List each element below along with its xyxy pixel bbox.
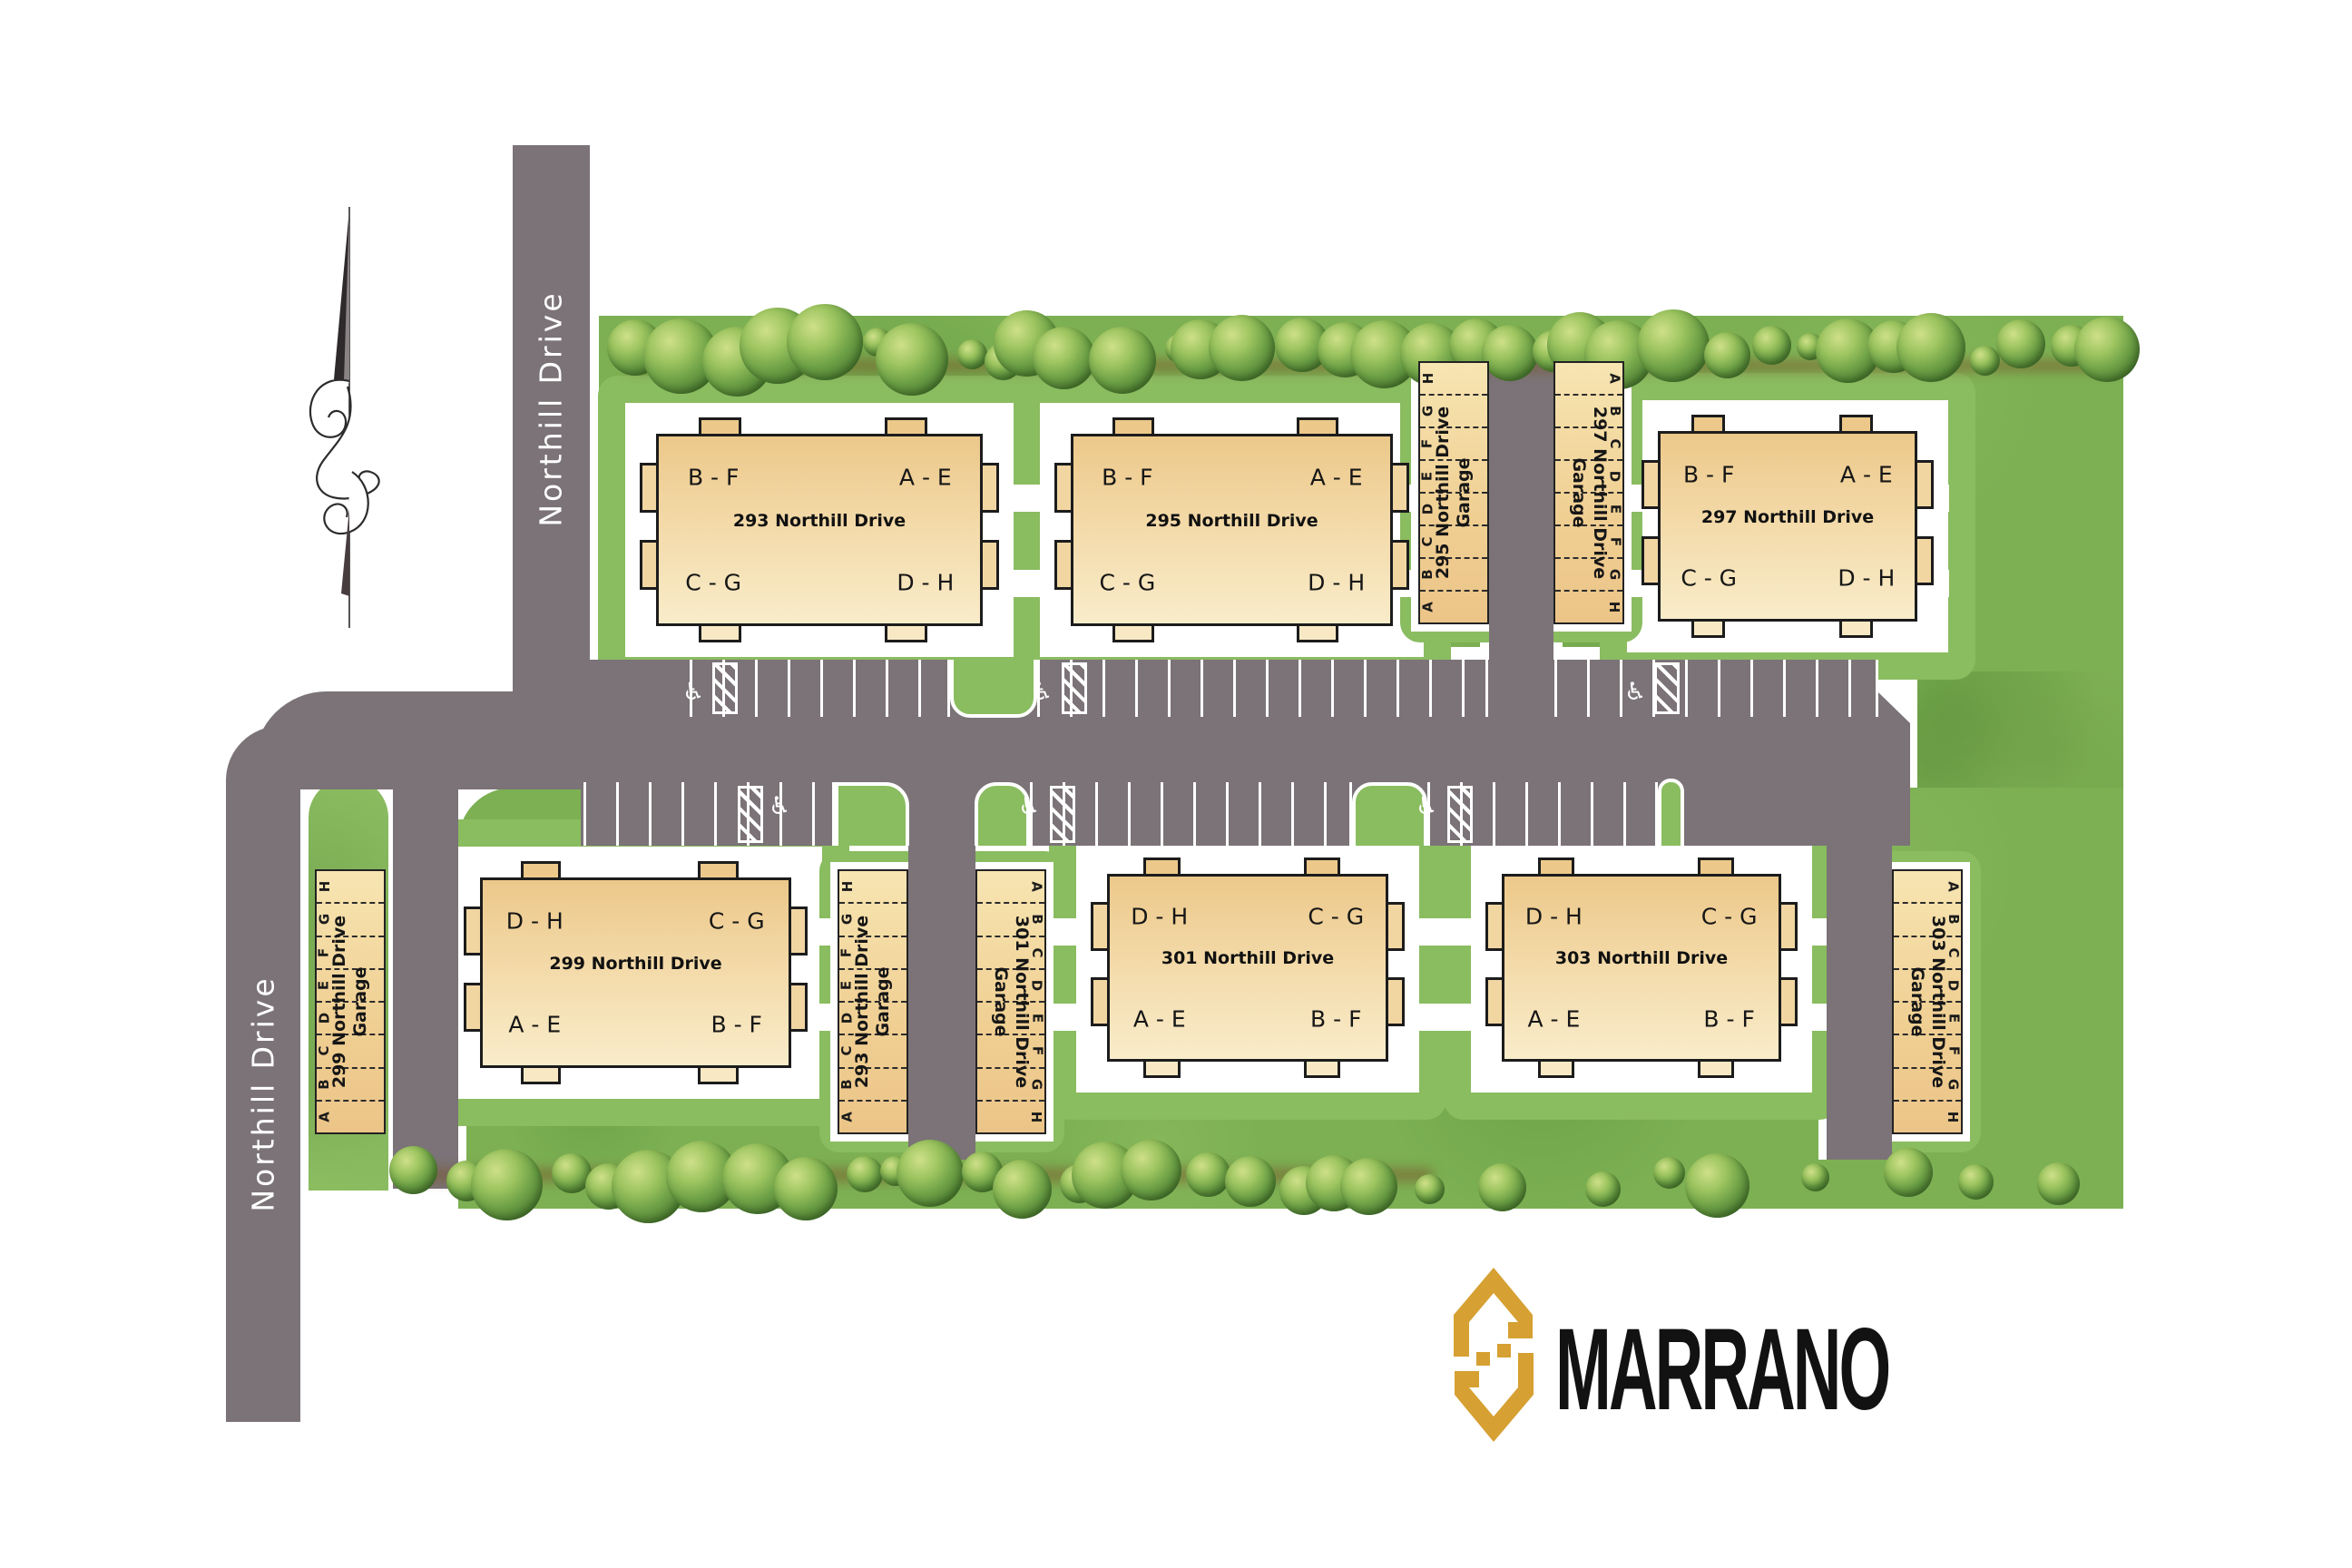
- unit-range-label: A - E: [899, 465, 952, 491]
- unit-range-label: C - G: [709, 907, 765, 934]
- building-footprint: B - F A - E C - G D - H 295 Northill Dri…: [1071, 434, 1393, 626]
- garage-stall: H: [1555, 590, 1622, 622]
- building-address-label: 303 Northill Drive: [1555, 948, 1728, 968]
- building-address-label: 293 Northill Drive: [733, 511, 906, 531]
- tree: [1685, 1153, 1749, 1218]
- tree: [1970, 346, 2000, 376]
- tree: [1958, 1164, 1994, 1200]
- unit-range-label: A - E: [1133, 1005, 1186, 1032]
- garage-stall: H: [1420, 363, 1487, 394]
- unit-range-label: C - G: [685, 569, 741, 595]
- tree: [1415, 1174, 1445, 1204]
- tree: [1186, 1152, 1230, 1197]
- garage-stall-letter: B: [1946, 915, 1960, 925]
- tree: [1033, 327, 1095, 389]
- marrano-logo-text: MARRANO: [1555, 1312, 2130, 1428]
- unit-range-label: C - G: [1701, 904, 1758, 930]
- garage-stall-letter: F: [1608, 537, 1622, 546]
- parking-island: [950, 656, 1037, 718]
- unit-range-label: B - F: [1703, 1005, 1754, 1032]
- tree: [1704, 332, 1750, 378]
- garage-stall-letter: A: [840, 1112, 854, 1122]
- building-address-label: 301 Northill Drive: [1161, 948, 1334, 968]
- garage-stall-letter: F: [1946, 1046, 1960, 1055]
- garage-stall-letter: C: [1608, 438, 1622, 448]
- garage-stall: H: [317, 871, 384, 902]
- building-address-label: 299 Northill Drive: [549, 954, 721, 974]
- tree: [774, 1157, 838, 1220]
- tree: [897, 1140, 964, 1207]
- garage-stall-letter: A: [1421, 602, 1435, 612]
- unit-range-label: B - F: [688, 465, 739, 491]
- garage-301: ABCDEFGH 301 Northill DriveGarage: [975, 869, 1046, 1134]
- unit-range-label: B - F: [1683, 461, 1734, 487]
- garage-303: ABCDEFGH 303 Northill DriveGarage: [1892, 869, 1963, 1134]
- unit-range-label: A - E: [508, 1012, 561, 1038]
- garage-stall-letter: C: [1946, 947, 1960, 957]
- tree: [1478, 1163, 1526, 1211]
- building-297: B - F A - E C - G D - H 297 Northill Dri…: [1638, 411, 1937, 642]
- unit-range-label: D - H: [1131, 904, 1188, 930]
- garage-stall-letter: E: [1030, 1014, 1044, 1023]
- unit-range-label: B - F: [1102, 465, 1152, 491]
- unit-range-label: D - H: [506, 907, 563, 934]
- garage-label: 303 Northill DriveGarage: [1906, 916, 1948, 1088]
- building-footprint: D - H C - G A - E B - F 303 Northill Dri…: [1502, 874, 1781, 1062]
- unit-range-label: C - G: [1308, 904, 1364, 930]
- north-arrow-compass: [272, 200, 426, 635]
- tree: [1653, 1157, 1685, 1189]
- garage-stall-letter: F: [1030, 1046, 1044, 1055]
- tree: [2074, 317, 2140, 382]
- building-301: D - H C - G A - E B - F 301 Northill Dri…: [1087, 854, 1408, 1082]
- tree: [1121, 1140, 1181, 1200]
- garage-stall-letter: E: [1608, 505, 1622, 514]
- accessible-stall: [738, 786, 763, 843]
- garage-stall-letter: H: [841, 881, 855, 893]
- garage-stall: H: [977, 1100, 1044, 1132]
- garage-stall-letter: E: [1946, 1014, 1960, 1023]
- garage-stall-letter: A: [1608, 373, 1622, 384]
- tree: [1752, 326, 1791, 365]
- site-plan: ♿ ♿ ♿ ♿ ♿ ♿ B - F A - E C - G D - H 293 …: [0, 0, 2352, 1568]
- parking-stalls: [583, 782, 835, 846]
- garage-297: ABCDEFGH 297 Northill DriveGarage: [1553, 361, 1624, 624]
- accessible-parking-icon: ♿: [1416, 794, 1437, 818]
- tree: [957, 339, 987, 369]
- garage-label: 295 Northill DriveGarage: [1433, 407, 1475, 579]
- road-label-northill-top: Northill Drive: [508, 154, 594, 662]
- garage-label: 299 Northill DriveGarage: [329, 916, 371, 1088]
- tree: [787, 304, 863, 380]
- garage-label: 301 Northill DriveGarage: [990, 916, 1032, 1088]
- garage-stall-letter: H: [1029, 1112, 1043, 1123]
- parking-stalls: [1554, 660, 1878, 717]
- tree: [389, 1146, 437, 1194]
- accessible-stall: [1654, 662, 1680, 714]
- garage-stall-letter: A: [1030, 881, 1044, 892]
- tree: [1482, 325, 1538, 381]
- marrano-logo-icon: [1443, 1266, 1544, 1444]
- garage-stall: A: [1894, 871, 1961, 902]
- accessible-parking-icon: ♿: [1031, 680, 1053, 704]
- parking-island: [1658, 779, 1684, 849]
- tree: [1340, 1158, 1397, 1215]
- accessible-parking-icon: ♿: [769, 794, 790, 818]
- unit-range-label: D - H: [1308, 569, 1365, 595]
- tree: [1996, 319, 2045, 368]
- accessible-parking-icon: ♿: [1624, 680, 1646, 704]
- tree: [1585, 1171, 1621, 1207]
- unit-range-label: B - F: [710, 1012, 761, 1038]
- unit-range-label: A - E: [1840, 461, 1893, 487]
- building-299: D - H C - G A - E B - F 299 Northill Dri…: [460, 857, 811, 1088]
- parking-island: [835, 782, 909, 849]
- garage-stall: H: [839, 871, 906, 902]
- tree: [1896, 313, 1965, 382]
- tree: [1089, 327, 1156, 394]
- building-303: D - H C - G A - E B - F 303 Northill Dri…: [1482, 854, 1801, 1082]
- garage-stall-letter: H: [1945, 1112, 1959, 1123]
- garage-stall: A: [317, 1100, 384, 1132]
- garage-299: HGFEDCBA 299 Northill DriveGarage: [315, 869, 386, 1134]
- tree: [1884, 1148, 1933, 1197]
- building-footprint: B - F A - E C - G D - H 293 Northill Dri…: [656, 434, 983, 626]
- building-footprint: D - H C - G A - E B - F 301 Northill Dri…: [1107, 874, 1388, 1062]
- accessible-parking-icon: ♿: [682, 680, 704, 704]
- garage-stall-letter: B: [1608, 406, 1622, 416]
- tree: [1209, 315, 1275, 381]
- parking-stalls: [1037, 660, 1488, 717]
- garage-stall-letter: H: [318, 881, 332, 893]
- accessible-stall: [1062, 662, 1087, 714]
- building-address-label: 295 Northill Drive: [1145, 511, 1318, 531]
- garage-stall-letter: A: [1946, 881, 1960, 892]
- garage-stall: A: [839, 1100, 906, 1132]
- driveway-south-middle: [908, 839, 975, 1160]
- garage-stall: A: [1555, 363, 1622, 394]
- garage-stall-letter: H: [1422, 373, 1436, 385]
- tree: [876, 323, 948, 396]
- building-footprint: D - H C - G A - E B - F 299 Northill Dri…: [480, 877, 791, 1068]
- accessible-parking-icon: ♿: [1018, 794, 1040, 818]
- building-293: B - F A - E C - G D - H 293 Northill Dri…: [636, 414, 1003, 646]
- driveway-southeast: [1827, 839, 1892, 1160]
- garage-stall: H: [1894, 1100, 1961, 1132]
- garage-stall: A: [977, 871, 1044, 902]
- unit-range-label: D - H: [1525, 904, 1583, 930]
- building-295: B - F A - E C - G D - H 295 Northill Dri…: [1051, 414, 1413, 646]
- unit-range-label: B - F: [1310, 1005, 1361, 1032]
- garage-stall-letter: C: [1030, 947, 1044, 957]
- garage-label: 297 Northill DriveGarage: [1568, 407, 1610, 579]
- building-address-label: 297 Northill Drive: [1701, 507, 1874, 527]
- tree: [993, 1160, 1052, 1219]
- unit-range-label: C - G: [1681, 565, 1737, 592]
- accessible-stall: [712, 662, 738, 714]
- tree: [471, 1149, 543, 1220]
- tree: [1225, 1156, 1276, 1207]
- unit-range-label: C - G: [1099, 569, 1155, 595]
- unit-range-label: A - E: [1527, 1005, 1580, 1032]
- unit-range-label: D - H: [1837, 565, 1895, 592]
- unit-range-label: A - E: [1310, 465, 1363, 491]
- garage-stall-letter: A: [318, 1112, 331, 1122]
- accessible-stall: [1447, 786, 1473, 843]
- accessible-stall: [1050, 786, 1075, 843]
- building-footprint: B - F A - E C - G D - H 297 Northill Dri…: [1658, 431, 1917, 622]
- road-label-northill-left: Northill Drive: [221, 935, 305, 1252]
- driveway-southwest: [393, 780, 458, 1189]
- garage-stall-letter: H: [1607, 602, 1621, 613]
- garage-293: HGFEDCBA 293 Northill DriveGarage: [838, 869, 908, 1134]
- road-connector: [254, 691, 590, 789]
- tree: [2037, 1162, 2080, 1205]
- unit-range-label: D - H: [897, 569, 954, 595]
- garage-label: 293 Northill DriveGarage: [852, 916, 894, 1088]
- tree: [1637, 309, 1710, 382]
- parking-stalls: [1030, 782, 1352, 846]
- garage-stall-letter: B: [1030, 915, 1044, 925]
- lawn-east: [1917, 671, 2123, 799]
- garage-295: HGFEDCBA 295 Northill DriveGarage: [1418, 361, 1489, 624]
- garage-stall: A: [1420, 590, 1487, 622]
- tree: [1801, 1163, 1829, 1191]
- tree: [847, 1156, 883, 1192]
- parking-lot: ♿ ♿ ♿ ♿ ♿ ♿: [581, 660, 1910, 846]
